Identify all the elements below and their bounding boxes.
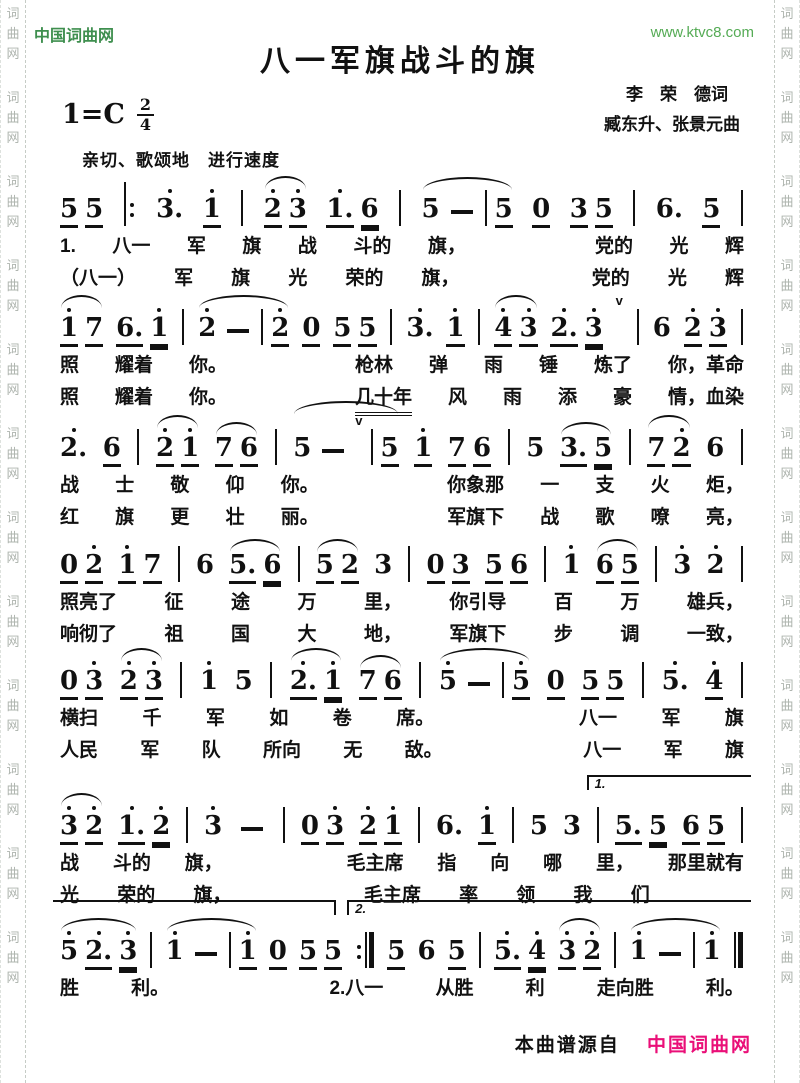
lyric-syllable: 壮 <box>226 504 245 531</box>
lyric-syllable: 利。 <box>131 975 169 1002</box>
note: 3. <box>406 308 433 347</box>
watermark-char: 网 <box>6 884 19 904</box>
duration-dash <box>241 827 263 831</box>
barline-bar <box>150 932 152 970</box>
note-number: 2 <box>152 813 170 845</box>
lyric-syllable: 敌。 <box>405 737 443 764</box>
note: 2 <box>152 806 170 845</box>
note-number: 3 <box>119 938 137 970</box>
lyric-syllable: 旗， <box>185 850 223 877</box>
music-system-3: 2.621765v517653.5726战士敬仰你。你象那一支火炬，红旗更壮丽。… <box>60 414 744 531</box>
note-number: 5. <box>229 552 256 584</box>
watermark-group: 词曲网 <box>6 88 19 148</box>
note: 5 <box>324 938 342 970</box>
barline-stroke <box>544 546 546 582</box>
volta-bracket: 2. <box>347 900 751 915</box>
lyrics-row: （八一）军旗光荣的旗，党的光辉 <box>60 265 744 292</box>
note: 5 <box>649 813 667 845</box>
lyric-syllable: 光 <box>669 233 688 260</box>
octave-dot <box>680 545 684 549</box>
watermark-char: 词 <box>780 4 793 24</box>
watermark-group: 词曲网 <box>6 592 19 652</box>
duration-dash <box>659 952 681 956</box>
note-number: 5 <box>707 813 725 845</box>
volta-label: 1. <box>595 776 606 791</box>
note-number: 3. <box>560 435 587 467</box>
octave-dot <box>130 806 134 810</box>
note: 3 <box>673 545 691 584</box>
barline-bar <box>399 190 401 228</box>
note-number: 5 <box>333 315 351 347</box>
note-number: 6 <box>240 435 258 467</box>
note-number: 1 <box>446 315 464 347</box>
watermark-group: 词曲网 <box>6 760 19 820</box>
lyric-syllable: 更 <box>170 504 189 531</box>
watermark-group: 词曲网 <box>780 340 793 400</box>
note-number: 7 <box>215 435 233 467</box>
note-number: 5 <box>530 813 548 845</box>
barline-bar <box>633 190 635 228</box>
watermark-group: 词曲网 <box>780 592 793 652</box>
octave-dot <box>691 308 695 312</box>
note-group: 6.1 <box>116 308 168 347</box>
note: 5 <box>422 196 440 228</box>
note-number: 5 <box>495 196 513 228</box>
barline-stroke <box>229 932 231 968</box>
note: 5 <box>316 552 334 584</box>
watermark-char: 网 <box>6 716 19 736</box>
barline-stroke <box>365 932 367 968</box>
note-group: 21 <box>359 806 402 845</box>
lyric-syllable: 支 <box>595 472 614 499</box>
note: 5 <box>530 813 548 845</box>
watermark-char: 网 <box>780 632 793 652</box>
lyric-syllable: 军 <box>140 737 159 764</box>
barline-stroke <box>655 546 657 582</box>
barline-bar <box>283 807 285 845</box>
lyric-syllable: 调 <box>620 621 639 648</box>
lyric-syllable: 向 <box>490 850 509 877</box>
watermark-char: 网 <box>6 212 19 232</box>
watermark-char: 词 <box>780 592 793 612</box>
watermark-char: 网 <box>780 128 793 148</box>
note-number: 5 <box>60 938 78 970</box>
note: 1 <box>181 428 199 467</box>
note-number: 6 <box>103 435 121 467</box>
note-number: 6 <box>473 435 491 467</box>
lyric-syllable: 队 <box>202 737 221 764</box>
note-number: 3 <box>558 938 576 970</box>
note-number: 2 <box>156 435 174 467</box>
barline-stroke <box>369 932 374 968</box>
note: 2. <box>60 428 87 467</box>
octave-dot <box>590 931 594 935</box>
lyric-syllable: 辉 <box>725 265 744 292</box>
barline-stroke <box>512 807 514 843</box>
note-group: 17 <box>118 545 161 584</box>
barline-bar <box>371 429 373 467</box>
note-number: 5 <box>299 938 317 970</box>
lyric-syllable: 雄兵， <box>687 589 744 616</box>
watermark-char: 网 <box>780 548 793 568</box>
watermark-char: 曲 <box>6 780 19 800</box>
octave-dot <box>592 308 596 312</box>
note-number: 0 <box>532 196 550 228</box>
watermark-char: 词 <box>6 508 19 528</box>
note: 1 <box>239 931 257 970</box>
lyric-syllable: 旗 <box>725 737 744 764</box>
barline-bar <box>275 429 277 467</box>
note: 5 <box>595 196 613 228</box>
note: 0 <box>302 315 320 347</box>
barline-bar <box>642 662 644 700</box>
note-number: 6 <box>653 315 671 347</box>
note-number: 0 <box>269 938 287 970</box>
octave-dot <box>485 806 489 810</box>
barline-bar <box>741 546 743 584</box>
watermark-char: 曲 <box>780 108 793 128</box>
octave-dot <box>338 189 342 193</box>
note: 1 <box>562 545 580 584</box>
lyrics-row: 战斗的旗，毛主席指向哪里，那里就有 <box>60 850 744 877</box>
lyric-syllable: 万 <box>297 589 316 616</box>
watermark-char: 网 <box>780 716 793 736</box>
slur-group: 11 <box>630 931 721 970</box>
note-number: 3 <box>289 196 307 228</box>
note-number: 4 <box>705 668 723 700</box>
lyric-syllable: 党的 <box>592 265 630 292</box>
slur-group: 32 <box>558 931 601 970</box>
lyric-syllable: 炬， <box>706 472 744 499</box>
notation-row: 553.1231.6550356.5 <box>60 176 744 228</box>
barline-stroke <box>283 807 285 843</box>
note-number: 2 <box>85 813 103 845</box>
note-number: 5 <box>85 196 103 228</box>
lyric-syllable: 地， <box>364 621 402 648</box>
barline-bar <box>478 309 480 347</box>
barline-stroke <box>186 807 188 843</box>
note-number: 0 <box>60 668 78 700</box>
note-number: 0 <box>301 813 319 845</box>
note-number: 2. <box>60 435 87 467</box>
watermark-char: 词 <box>780 88 793 108</box>
barline-bar <box>298 546 300 584</box>
watermark-char: 词 <box>6 4 19 24</box>
watermark-char: 网 <box>780 464 793 484</box>
watermark-char: 网 <box>6 968 19 988</box>
note-group: 76 <box>448 435 491 467</box>
note-number: 1 <box>118 552 136 584</box>
octave-dot <box>72 428 76 432</box>
music-systems: 553.1231.6550356.51.八一军旗战斗的旗，党的光辉（八一）军旗光… <box>60 0 744 1083</box>
lyric-syllable: 雨 <box>484 352 503 379</box>
slur-group: 52 <box>316 552 359 584</box>
note: 1. <box>118 806 145 845</box>
barline-stroke <box>408 546 410 582</box>
lyric-syllable: 歌 <box>595 504 614 531</box>
note-group: 55 <box>60 196 103 228</box>
watermark-char: 网 <box>6 632 19 652</box>
note: 6 <box>706 435 724 467</box>
octave-dot <box>562 308 566 312</box>
note-number: 1 <box>478 813 496 845</box>
watermark-char: 曲 <box>6 276 19 296</box>
watermark-char: 曲 <box>6 528 19 548</box>
barline-bar <box>229 932 231 970</box>
barline-bar <box>418 807 420 845</box>
barline-stroke <box>478 309 480 345</box>
watermark-char: 曲 <box>780 276 793 296</box>
octave-dot <box>446 661 450 665</box>
lyrics-row: 横扫千军如卷席。八一军旗 <box>60 705 744 732</box>
watermark-char: 网 <box>780 212 793 232</box>
note: 5 <box>60 196 78 228</box>
note-number: 5. <box>615 813 642 845</box>
note-group: 55 <box>581 668 624 700</box>
watermark-char: 曲 <box>6 612 19 632</box>
note-number: 7 <box>85 315 103 347</box>
note: 6 <box>240 435 258 467</box>
note: 2 <box>707 545 725 584</box>
note: 5 <box>448 938 466 970</box>
barline-bar <box>741 190 743 228</box>
note-number: 1 <box>239 938 257 970</box>
note-number: 2 <box>684 315 702 347</box>
watermark-char: 网 <box>780 296 793 316</box>
lyric-syllable: 利 <box>526 975 545 1002</box>
lyric-syllable: 无 <box>343 737 362 764</box>
watermark-group: 词曲网 <box>780 88 793 148</box>
barline-bar <box>241 190 243 228</box>
lyric-syllable: 大 <box>297 621 316 648</box>
duration-dash <box>451 210 473 214</box>
note-number: 5 <box>606 668 624 700</box>
watermark-char: 曲 <box>780 192 793 212</box>
lyric-syllable: 国 <box>231 621 250 648</box>
octave-dot <box>418 308 422 312</box>
watermark-char: 曲 <box>780 612 793 632</box>
octave-dot <box>278 308 282 312</box>
note-group: 2.3 <box>550 308 602 347</box>
note: 3 <box>709 308 727 347</box>
watermark-char: 词 <box>780 508 793 528</box>
note: 5 <box>293 435 311 467</box>
barline-bar <box>741 309 743 347</box>
note: 6 <box>103 435 121 467</box>
watermark-column-left: 词曲网词曲网词曲网词曲网词曲网词曲网词曲网词曲网词曲网词曲网词曲网词曲网 <box>0 0 26 1083</box>
barline-stroke <box>485 190 487 226</box>
watermark-char: 曲 <box>6 948 19 968</box>
watermark-group: 词曲网 <box>780 676 793 736</box>
barline-stroke <box>741 807 743 843</box>
octave-dot <box>163 428 167 432</box>
note: 5 <box>495 196 513 228</box>
note-number: 3 <box>204 813 222 845</box>
note-number: 1 <box>181 435 199 467</box>
watermark-char: 网 <box>780 884 793 904</box>
note-number: 6 <box>384 668 402 700</box>
octave-dot <box>92 806 96 810</box>
note-number: 3 <box>570 196 588 228</box>
octave-dot <box>527 308 531 312</box>
note: 5 <box>358 315 376 347</box>
octave-dot <box>92 545 96 549</box>
slur-group: 23 <box>120 661 163 700</box>
lyric-syllable: 横扫 <box>60 705 98 732</box>
note: 1 <box>203 189 221 228</box>
lyrics-row: 照耀着你。几十年风雨添豪情，血染 <box>60 384 744 416</box>
lyric-syllable: 军旗下 <box>449 621 506 648</box>
lyric-syllable: 军 <box>174 265 193 292</box>
note: 1 <box>166 931 184 970</box>
note: 3 <box>374 552 392 584</box>
music-system-4: 021765.6523035616532照亮了征途万里，你引导百万雄兵，响彻了祖… <box>60 532 744 648</box>
note: 2 <box>583 931 601 970</box>
watermark-char: 词 <box>780 844 793 864</box>
notation-row: 2.621765v517653.5726 <box>60 414 744 467</box>
lyric-syllable: 耀着 <box>115 384 153 411</box>
note-number: 0 <box>427 552 445 584</box>
octave-dot <box>519 661 523 665</box>
lyric-syllable: 指 <box>437 850 456 877</box>
slur-group: 76 <box>359 668 402 700</box>
barline-stroke <box>261 309 263 345</box>
footer-site-link[interactable]: 中国词曲网 <box>647 1035 752 1056</box>
barline-stroke <box>741 190 743 226</box>
note: 2 <box>120 661 138 700</box>
music-system-1: 553.1231.6550356.51.八一军旗战斗的旗，党的光辉（八一）军旗光… <box>60 176 744 292</box>
notation-row: 52.3110555655.43211 <box>60 918 744 970</box>
lyric-syllable: 你，革命 <box>668 352 744 379</box>
barline-stroke <box>124 182 126 226</box>
lyric-syllable: 枪林 <box>355 352 393 379</box>
watermark-group: 词曲网 <box>6 508 19 568</box>
lyric-syllable: 耀着 <box>115 352 153 379</box>
octave-dot <box>296 189 300 193</box>
note-number: 3. <box>156 196 183 228</box>
watermark-char: 词 <box>780 760 793 780</box>
lyric-syllable: 辉 <box>725 233 744 260</box>
octave-dot <box>331 661 335 665</box>
lyric-syllable: 雨 <box>503 384 522 411</box>
footer-source: 本曲谱源自 中国词曲网 <box>515 1030 752 1057</box>
note: 1 <box>630 931 648 970</box>
note: 1 <box>478 806 496 845</box>
lyric-syllable: 锤 <box>539 352 558 379</box>
note: 3 <box>85 661 103 700</box>
barline-final <box>734 932 743 970</box>
octave-dot <box>188 428 192 432</box>
note-number: 5. <box>662 668 689 700</box>
note: 2 <box>341 552 359 584</box>
lyric-syllable: 响彻了 <box>60 621 117 648</box>
barline-stroke <box>418 807 420 843</box>
lyric-syllable: 亮， <box>706 504 744 531</box>
barline-stroke <box>298 546 300 582</box>
note-number: 5 <box>526 435 544 467</box>
note: 6 <box>653 315 671 347</box>
note: 0 <box>301 813 319 845</box>
note-number: 6. <box>436 813 463 845</box>
note-number: 1 <box>414 435 432 467</box>
note-number: 6. <box>116 315 143 347</box>
watermark-group: 词曲网 <box>6 172 19 232</box>
octave-dot <box>680 428 684 432</box>
note: 6 <box>384 668 402 700</box>
note: 3 <box>119 931 137 970</box>
octave-dot <box>173 931 177 935</box>
watermark-char: 词 <box>780 172 793 192</box>
lyric-syllable: 八一 <box>112 233 150 260</box>
note-number: 6. <box>656 196 683 228</box>
slur-group: 5.6 <box>229 552 281 584</box>
barline-stroke <box>614 932 616 968</box>
note: 6. <box>436 813 463 845</box>
lyric-syllable: 照 <box>60 384 79 411</box>
lyrics-row: 人民军队所向无敌。八一军旗 <box>60 737 744 764</box>
note-number: 4 <box>494 315 512 347</box>
watermark-char: 词 <box>6 928 19 948</box>
watermark-char: 词 <box>780 424 793 444</box>
note: 2. <box>550 308 577 347</box>
note: 3 <box>289 189 307 228</box>
note: 3 <box>558 931 576 970</box>
watermark-group: 词曲网 <box>780 844 793 904</box>
note-group: 1.2 <box>118 806 170 845</box>
note-number: 5 <box>439 668 457 700</box>
lyric-syllable: 走向胜 <box>597 975 654 1002</box>
slur-group: 55 <box>439 661 530 700</box>
octave-dot <box>569 545 573 549</box>
note: 1 <box>414 428 432 467</box>
octave-dot <box>207 661 211 665</box>
barline-stroke <box>642 662 644 698</box>
slur-group: 55 <box>422 190 513 228</box>
lyric-syllable: 途 <box>231 589 250 616</box>
octave-dot <box>205 308 209 312</box>
note-number: 1 <box>324 668 342 700</box>
lyric-syllable: 旗 <box>242 233 261 260</box>
note-number: 2 <box>120 668 138 700</box>
lyrics-row: 胜利。2.八一从胜利走向胜利。 <box>60 975 744 1002</box>
note-number: 1 <box>60 315 78 347</box>
note-group: 55 <box>299 938 342 970</box>
lyric-syllable: 你引导 <box>449 589 506 616</box>
note: 1 <box>324 661 342 700</box>
note-number: 6 <box>361 196 379 228</box>
lyric-syllable: 那里就有 <box>668 850 744 877</box>
barline-stroke <box>399 190 401 226</box>
note: 2. <box>290 661 317 700</box>
barline-bar <box>390 309 392 347</box>
note: 2 <box>264 189 282 228</box>
lyric-syllable: 旗 <box>725 705 744 732</box>
barline-bar <box>479 932 481 970</box>
octave-dot <box>391 806 395 810</box>
note: 5 <box>235 668 253 700</box>
lyric-syllable: 照亮了 <box>60 589 117 616</box>
note: 5 <box>581 668 599 700</box>
watermark-group: 词曲网 <box>6 676 19 736</box>
note: 1 <box>703 931 721 970</box>
barline-stroke <box>137 429 139 465</box>
note-number: 2 <box>264 196 282 228</box>
octave-dot <box>453 308 457 312</box>
octave-dot <box>710 931 714 935</box>
watermark-group: 词曲网 <box>6 928 19 988</box>
slur-group: 32 <box>60 806 103 845</box>
note: 2 <box>359 806 377 845</box>
